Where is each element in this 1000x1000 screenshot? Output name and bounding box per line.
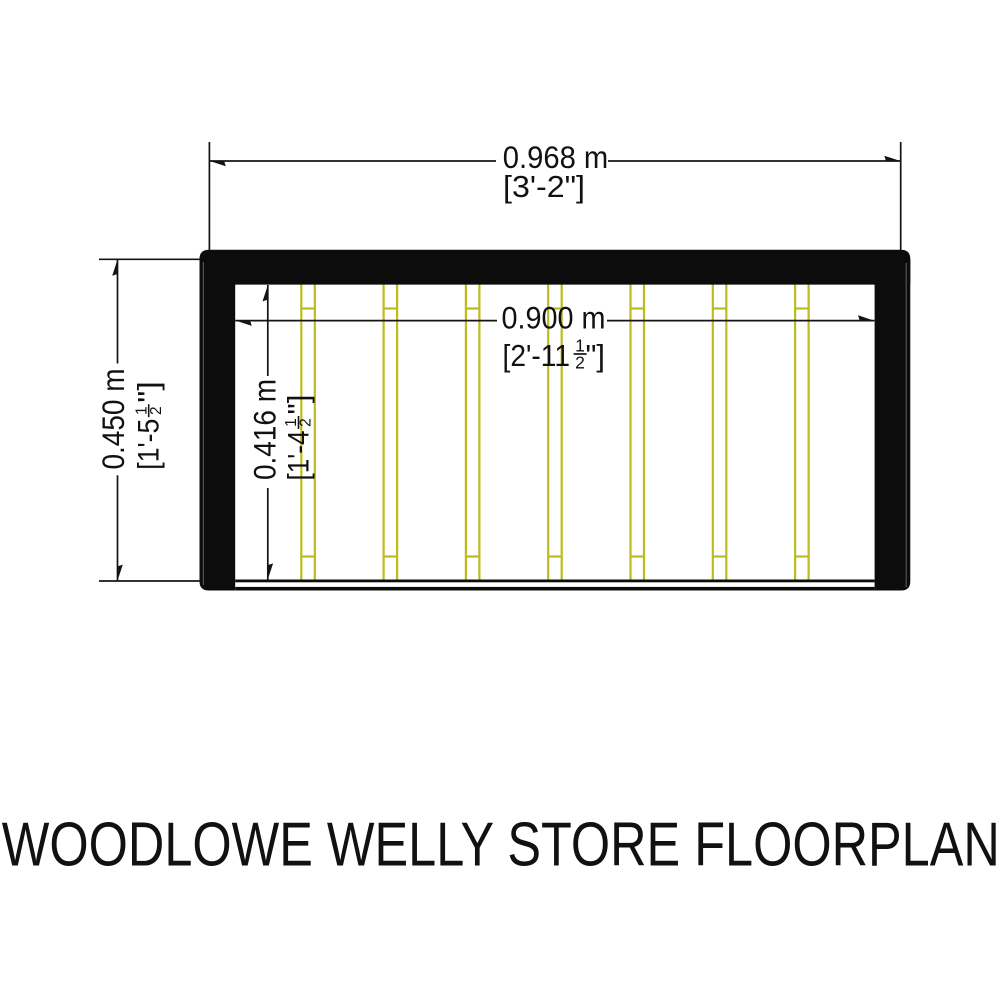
svg-text:[3'-2"]: [3'-2"] <box>503 169 585 204</box>
svg-text:2: 2 <box>298 418 315 427</box>
svg-text:[1'-5: [1'-5 <box>133 419 166 470</box>
svg-text:WOODLOWE WELLY STORE FLOORPLAN: WOODLOWE WELLY STORE FLOORPLAN <box>2 811 1000 880</box>
svg-text:"]: "] <box>586 338 606 373</box>
svg-text:[1'-4: [1'-4 <box>283 431 316 481</box>
svg-text:0.450 m: 0.450 m <box>96 369 131 470</box>
svg-text:2: 2 <box>575 353 585 373</box>
svg-text:[2'-11: [2'-11 <box>503 338 571 373</box>
svg-text:0.900 m: 0.900 m <box>502 301 606 336</box>
svg-text:"]: "] <box>133 381 166 403</box>
svg-text:2: 2 <box>148 406 165 415</box>
svg-text:"]: "] <box>283 395 316 415</box>
svg-text:0.416 m: 0.416 m <box>248 379 283 480</box>
